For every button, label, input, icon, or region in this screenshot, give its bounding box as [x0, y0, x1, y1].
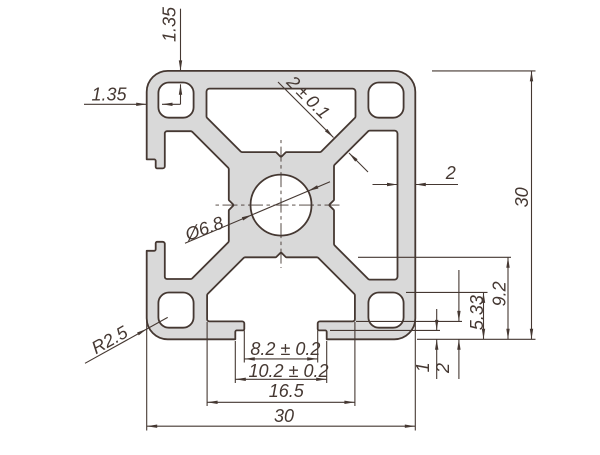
svg-text:9.2: 9.2 [490, 281, 510, 306]
svg-text:1.35: 1.35 [160, 6, 180, 42]
svg-text:2: 2 [433, 363, 453, 374]
svg-text:1.35: 1.35 [91, 84, 127, 104]
svg-text:5.33: 5.33 [467, 295, 487, 330]
svg-text:1: 1 [413, 362, 433, 372]
svg-text:30: 30 [512, 187, 532, 207]
svg-text:30: 30 [274, 406, 294, 426]
svg-text:8.2 ± 0.2: 8.2 ± 0.2 [250, 339, 320, 359]
svg-text:2: 2 [445, 163, 456, 183]
svg-text:10.2 ± 0.2: 10.2 ± 0.2 [249, 361, 329, 381]
svg-text:16.5: 16.5 [269, 381, 305, 401]
